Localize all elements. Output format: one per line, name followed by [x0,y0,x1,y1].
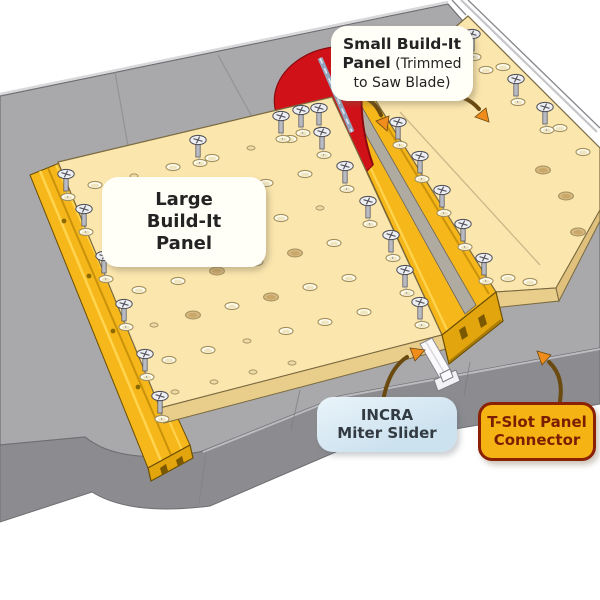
panel-pilot-hole [249,370,257,374]
panel-plug-hole [571,228,586,236]
callout-miter-slider: INCRA Miter Slider [317,397,457,452]
panel-hole [523,278,537,285]
panel-pilot-hole [171,390,179,394]
track-rivet [111,329,116,334]
panel-pilot-hole [243,339,251,343]
panel-hole [166,163,180,170]
callout-large-panel: Large Build-It Panel [102,177,266,267]
track-rivet [62,219,67,224]
panel-hole [327,239,341,246]
panel-plug-hole [186,311,201,319]
sled-diagram [0,0,600,600]
panel-hole [88,181,102,188]
panel-pilot-hole [247,146,255,150]
illustration-stage: Small Build-It Panel (Trimmed to Saw Bla… [0,0,600,600]
panel-hole [205,154,219,161]
panel-hole [298,170,312,177]
panel-plug-hole [288,249,303,257]
panel-hole [274,214,288,221]
panel-plug-hole [210,267,225,275]
panel-hole [162,356,176,363]
panel-hole [342,274,356,281]
panel-hole [171,277,185,284]
panel-plug-hole [264,293,279,301]
panel-hole [553,124,567,131]
callout-tslot-connector: T-Slot Panel Connector [478,402,596,461]
panel-hole [318,318,332,325]
callout-small-panel: Small Build-It Panel (Trimmed to Saw Bla… [331,26,473,101]
panel-pilot-hole [210,380,218,384]
panel-plug-hole [559,192,574,200]
panel-hole [501,274,515,281]
panel-plug-hole [536,166,551,174]
panel-hole [132,286,146,293]
panel-hole [496,63,510,70]
panel-pilot-hole [150,323,158,327]
panel-hole [279,327,293,334]
track-rivet [136,385,141,390]
panel-pilot-hole [316,206,324,210]
panel-hole [225,302,239,309]
track-rivet [87,274,92,279]
panel-hole [576,148,590,155]
panel-hole [357,308,371,315]
panel-pilot-hole [288,361,296,365]
panel-hole [201,346,215,353]
panel-hole [303,283,317,290]
panel-hole [479,66,493,73]
